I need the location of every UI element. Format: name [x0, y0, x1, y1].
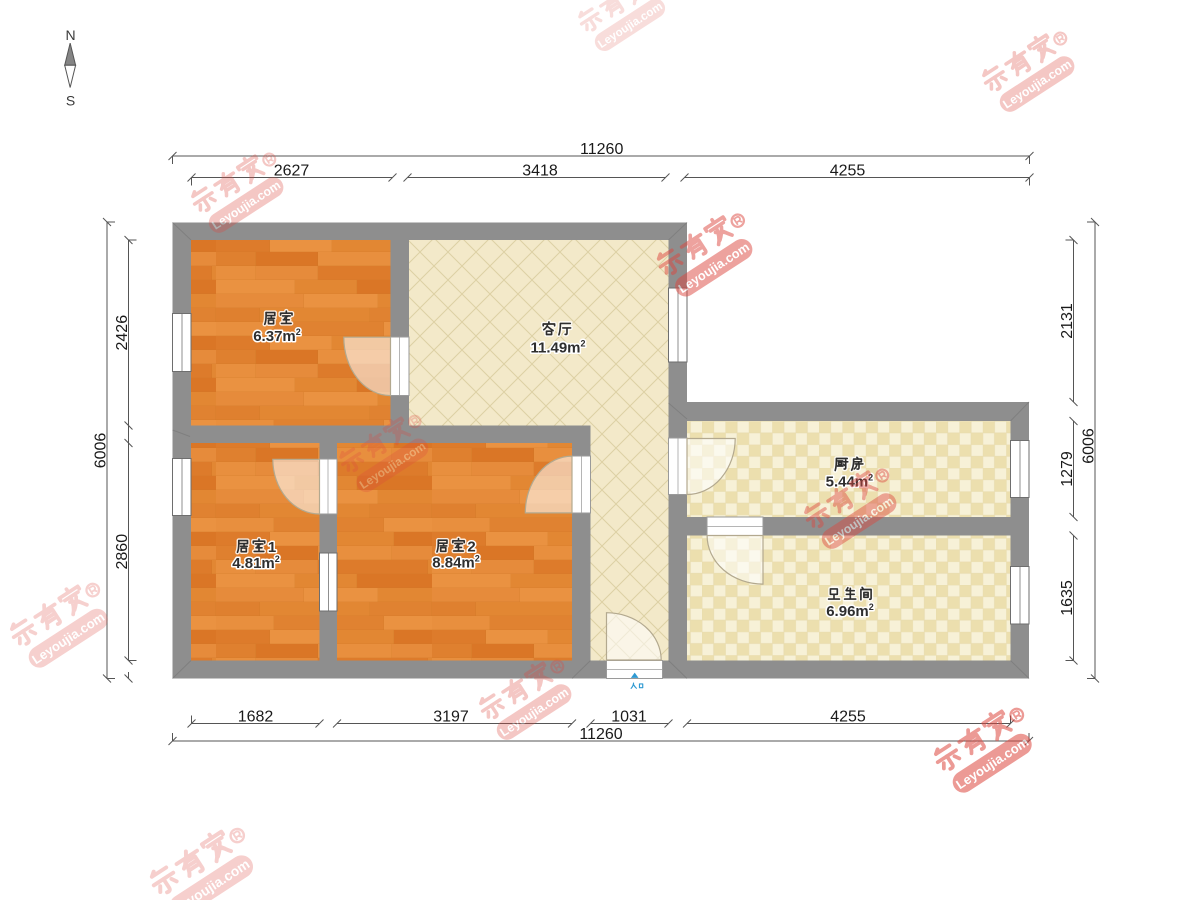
svg-text:6006: 6006	[1081, 428, 1098, 464]
svg-text:4255: 4255	[830, 709, 866, 726]
svg-text:N: N	[65, 27, 75, 43]
svg-text:1031: 1031	[611, 709, 647, 726]
svg-text:11260: 11260	[580, 141, 623, 158]
svg-text:S: S	[66, 93, 75, 109]
svg-text:3418: 3418	[522, 163, 558, 180]
svg-text:2860: 2860	[114, 534, 131, 570]
svg-text:3197: 3197	[433, 709, 469, 726]
svg-text:6.37m2: 6.37m2	[253, 327, 301, 345]
svg-text:4.81m2: 4.81m2	[232, 554, 280, 572]
svg-text:8.84m2: 8.84m2	[432, 554, 480, 572]
svg-text:2426: 2426	[114, 315, 131, 351]
svg-text:2627: 2627	[274, 163, 310, 180]
svg-text:11260: 11260	[579, 726, 622, 743]
svg-text:11.49m2: 11.49m2	[530, 338, 585, 356]
svg-text:1635: 1635	[1059, 580, 1076, 616]
svg-text:4255: 4255	[830, 163, 866, 180]
svg-text:6006: 6006	[93, 433, 110, 469]
svg-text:1682: 1682	[238, 709, 274, 726]
svg-text:1279: 1279	[1059, 451, 1076, 487]
svg-text:2131: 2131	[1059, 303, 1076, 339]
svg-text:6.96m2: 6.96m2	[826, 602, 874, 620]
